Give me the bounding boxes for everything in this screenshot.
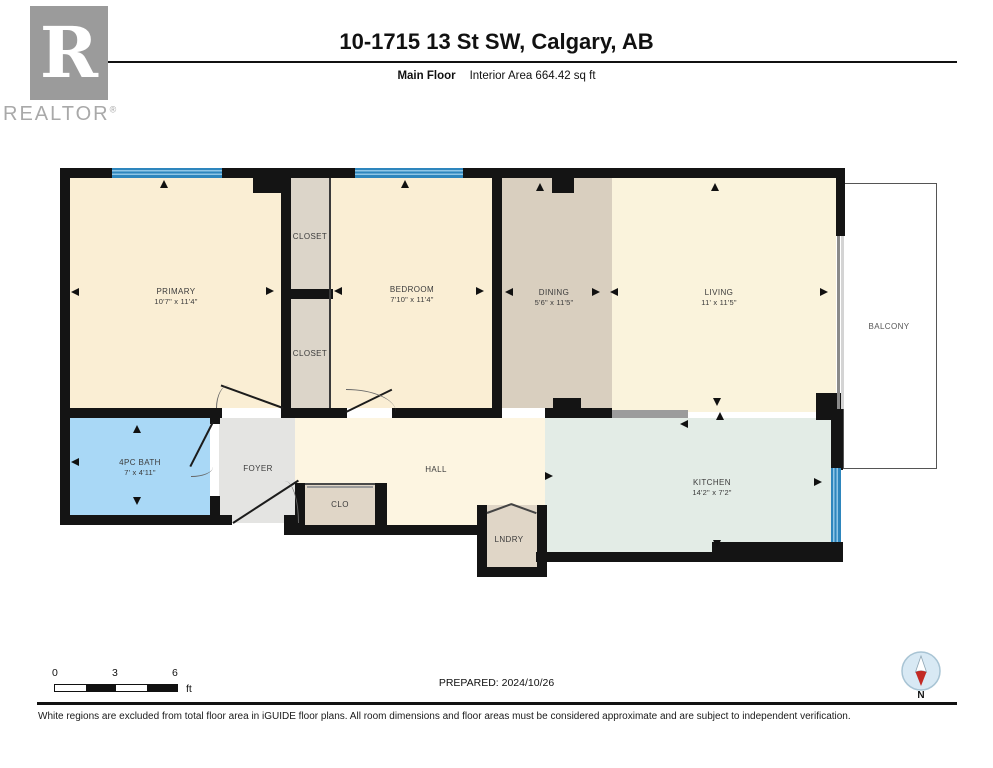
room-label-bedroom: BEDROOM7'10" x 11'4" <box>390 285 434 305</box>
wall <box>210 496 220 515</box>
room-name: LNDRY <box>495 535 524 545</box>
direction-arrow-icon <box>133 497 141 505</box>
direction-arrow-icon <box>334 287 342 295</box>
room-label-clo: CLO <box>331 500 349 510</box>
direction-arrow-icon <box>536 183 544 191</box>
room-label-closet-top: CLOSET <box>293 232 327 242</box>
room-name: CLO <box>331 500 349 510</box>
window <box>355 168 463 178</box>
floor-label: Main Floor <box>397 70 455 82</box>
wall <box>492 177 502 418</box>
direction-arrow-icon <box>716 412 724 420</box>
direction-arrow-icon <box>680 420 688 428</box>
closet-partition-line <box>329 178 331 408</box>
room-name: FOYER <box>243 464 273 474</box>
room-name: BALCONY <box>868 322 909 332</box>
area-label: Interior Area 664.42 sq ft <box>470 70 596 82</box>
header-divider-line <box>35 61 957 63</box>
room-dims: 5'6" x 11'5" <box>535 298 574 308</box>
room-label-bath: 4PC BATH7' x 4'11" <box>119 458 161 478</box>
room-name: CLOSET <box>293 349 327 359</box>
wall <box>836 168 845 236</box>
realtor-logo: R <box>30 6 108 100</box>
room-dims: 7'10" x 11'4" <box>390 295 434 305</box>
room-label-dining: DINING5'6" x 11'5" <box>535 288 574 308</box>
wall <box>712 542 843 552</box>
room-label-balcony: BALCONY <box>868 322 909 332</box>
wall <box>291 408 347 418</box>
room-name: LIVING <box>701 288 736 298</box>
wall <box>545 408 612 418</box>
direction-arrow-icon <box>713 398 721 406</box>
footer-divider-line <box>37 702 957 705</box>
wall <box>537 505 547 577</box>
room-dims: 7' x 4'11" <box>119 468 161 478</box>
direction-arrow-icon <box>820 288 828 296</box>
room-dims: 11' x 11'5" <box>701 298 736 308</box>
wall <box>536 552 843 562</box>
room-dims: 14'2" x 7'2" <box>692 488 731 498</box>
room-dims: 10'7" x 11'4" <box>154 297 197 307</box>
direction-arrow-icon <box>610 288 618 296</box>
wall <box>60 408 222 418</box>
closet-sliding-door-track <box>307 486 373 488</box>
prepared-date-label: PREPARED: 2024/10/26 <box>0 677 993 689</box>
direction-arrow-icon <box>592 288 600 296</box>
room-label-living: LIVING11' x 11'5" <box>701 288 736 308</box>
room-name: KITCHEN <box>692 478 731 488</box>
room-label-hall: HALL <box>425 465 447 475</box>
floor-subheader: Main FloorInterior Area 664.42 sq ft <box>0 70 993 82</box>
window <box>831 468 841 542</box>
room-label-foyer: FOYER <box>243 464 273 474</box>
realtor-logo-r: R <box>40 18 98 88</box>
north-label: N <box>906 690 936 701</box>
room-kitchen <box>545 418 836 552</box>
direction-arrow-icon <box>266 287 274 295</box>
direction-arrow-icon <box>71 458 79 466</box>
room-name: HALL <box>425 465 447 475</box>
closet-sliding-door <box>305 483 375 485</box>
floorplan-page: R REALTOR® 10-1715 13 St SW, Calgary, AB… <box>0 0 993 768</box>
sliding-door <box>837 236 840 409</box>
sliding-door-track <box>841 236 844 409</box>
registered-symbol: ® <box>110 104 119 114</box>
direction-arrow-icon <box>476 287 484 295</box>
page-title: 10-1715 13 St SW, Calgary, AB <box>0 29 993 55</box>
kitchen-counter <box>612 410 688 418</box>
room-label-primary: PRIMARY10'7" x 11'4" <box>154 287 197 307</box>
direction-arrow-icon <box>505 288 513 296</box>
wall <box>60 168 70 525</box>
room-label-lndry: LNDRY <box>495 535 524 545</box>
room-name: CLOSET <box>293 232 327 242</box>
realtor-wordmark-text: REALTOR <box>3 103 110 125</box>
direction-arrow-icon <box>713 540 721 548</box>
direction-arrow-icon <box>545 472 553 480</box>
wall <box>281 289 333 299</box>
room-name: PRIMARY <box>154 287 197 297</box>
window <box>112 168 222 178</box>
wall <box>60 515 232 525</box>
realtor-wordmark: REALTOR® <box>3 103 153 126</box>
wall <box>253 177 287 193</box>
room-label-kitchen: KITCHEN14'2" x 7'2" <box>692 478 731 498</box>
direction-arrow-icon <box>133 425 141 433</box>
direction-arrow-icon <box>160 180 168 188</box>
direction-arrow-icon <box>711 183 719 191</box>
direction-arrow-icon <box>401 180 409 188</box>
room-name: DINING <box>535 288 574 298</box>
direction-arrow-icon <box>814 478 822 486</box>
room-name: BEDROOM <box>390 285 434 295</box>
disclaimer-text: White regions are excluded from total fl… <box>38 711 973 722</box>
room-name: 4PC BATH <box>119 458 161 468</box>
compass-icon <box>901 651 941 691</box>
wall <box>375 483 387 530</box>
wall <box>552 177 574 193</box>
wall <box>392 408 492 418</box>
room-label-closet-bottom: CLOSET <box>293 349 327 359</box>
direction-arrow-icon <box>71 288 79 296</box>
